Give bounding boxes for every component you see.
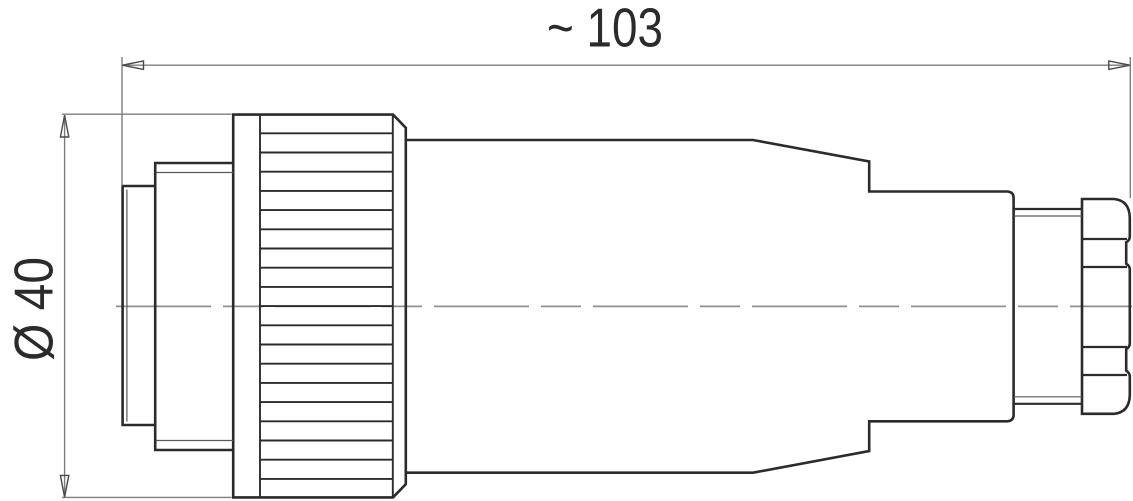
technical-drawing-canvas: ~ 103 Ø 40 — [0, 0, 1133, 501]
connector-side-view-drawing: ~ 103 Ø 40 — [0, 0, 1133, 501]
diameter-dimension-label: Ø 40 — [3, 257, 65, 361]
length-dimension: ~ 103 — [122, 0, 1130, 198]
length-dimension-label: ~ 103 — [547, 0, 663, 59]
knurl-ribs — [260, 133, 393, 479]
